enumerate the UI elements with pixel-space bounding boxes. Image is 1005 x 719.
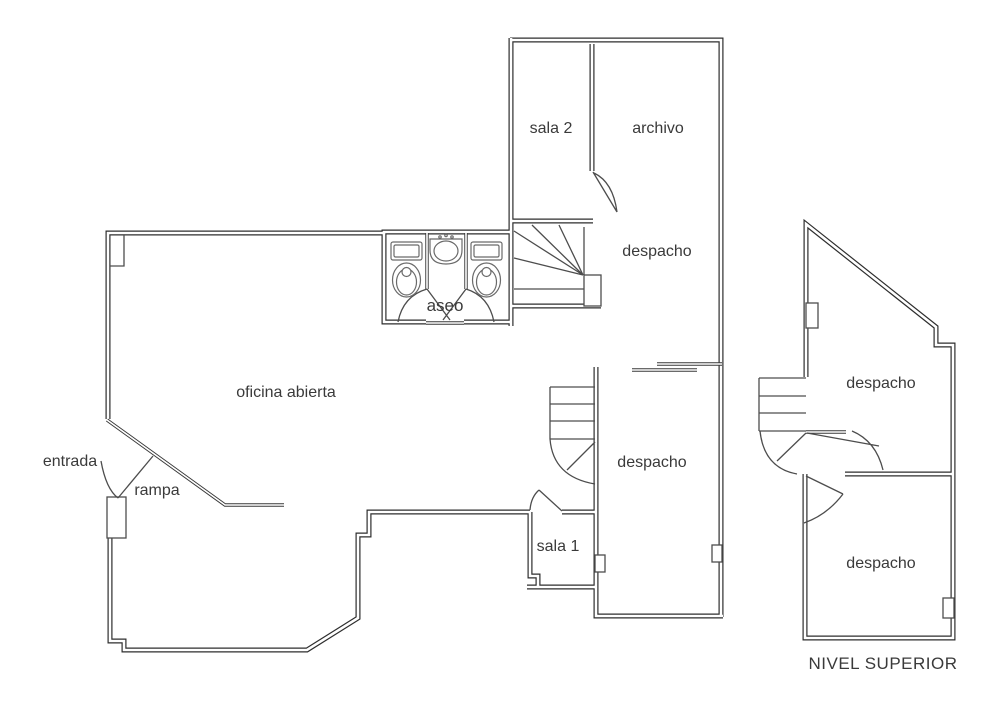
stairs-straight-main	[550, 387, 595, 484]
room-label-despacho-norte: despacho	[622, 243, 691, 260]
room-label-oficina-abierta: oficina abierta	[236, 384, 336, 401]
stairs-superior	[759, 378, 806, 474]
toilet-icon-right	[471, 242, 502, 297]
room-label-superior-despacho-norte: despacho	[846, 375, 915, 392]
niche-superior-right	[943, 598, 954, 618]
niche-despacho-sur-right	[712, 545, 722, 562]
room-label-superior-despacho-sur: despacho	[846, 555, 915, 572]
room-label-sala-2: sala 2	[530, 120, 573, 137]
door-sala2	[593, 172, 617, 212]
niche-despacho-sur-left	[595, 555, 605, 572]
floor-plan-page: sala 2 archivo despacho aseo oficina abi…	[0, 0, 1005, 719]
floor-plan-canvas: sala 2 archivo despacho aseo oficina abi…	[0, 0, 1005, 719]
sink-icon	[430, 234, 462, 264]
plan-caption-nivel-superior: NIVEL SUPERIOR	[808, 654, 957, 673]
toilet-icon-left	[391, 242, 422, 297]
room-label-despacho-sur: despacho	[617, 454, 686, 471]
doors-superior	[804, 431, 883, 523]
room-label-rampa: rampa	[134, 482, 179, 499]
door-sala1	[530, 490, 562, 511]
entrada-pillar	[107, 497, 126, 538]
niche-superior-left	[806, 303, 818, 328]
stair-landing	[584, 275, 601, 306]
room-label-entrada: entrada	[43, 453, 97, 470]
corner-notch-line	[110, 235, 124, 266]
room-label-archivo: archivo	[632, 120, 684, 137]
stairs-winder-main	[514, 225, 601, 306]
room-label-aseo: aseo	[427, 296, 464, 315]
room-label-sala-1: sala 1	[537, 538, 580, 555]
